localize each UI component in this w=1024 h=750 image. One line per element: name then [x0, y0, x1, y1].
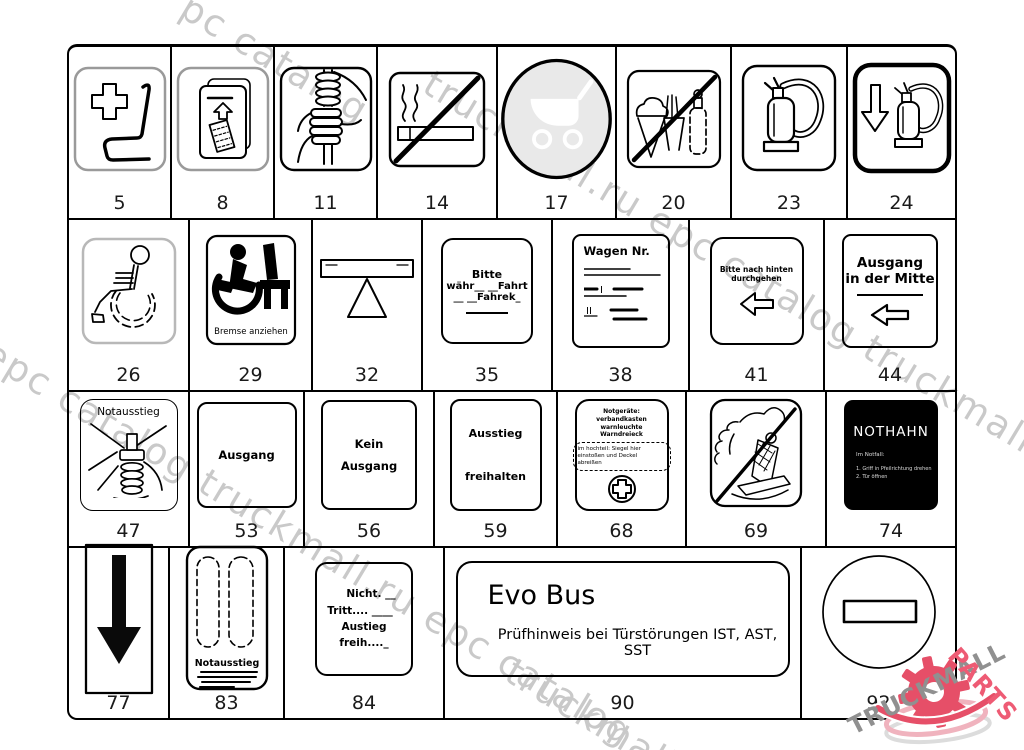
sign-line: Bitte nach hinten [720, 265, 793, 274]
item-number: 44 [825, 364, 955, 386]
sign-line: währ__ __Fahrt [446, 281, 527, 292]
wagen-nr-sign: Wagen Nr. I II [572, 234, 670, 348]
sign-line: freih...._ [339, 635, 388, 651]
catalog-cell-5[interactable]: 5 [69, 47, 172, 218]
sign-line: 1. Griff in Pfeilrichtung drehen [856, 466, 938, 472]
table-row: Notausstieg 47 Ausgang [69, 392, 955, 548]
item-number: 29 [190, 364, 311, 386]
item-number: 35 [423, 364, 551, 386]
move-to-back-sign: Bitte nach hinten durchgehen [710, 237, 804, 345]
sign-line: freihalten [465, 470, 526, 483]
sign-line: Im Notfall: [856, 452, 938, 458]
item-number: 24 [848, 192, 955, 214]
wheelchair-brake-icon: Bremse anziehen [203, 233, 299, 349]
sign-line: einstoßen und Deckel [578, 453, 666, 460]
sign-line: Notgeräte: [603, 408, 640, 416]
first-aid-seat-icon [72, 64, 168, 174]
item-number: 68 [558, 520, 685, 542]
item-number: 20 [617, 192, 730, 214]
catalog-cell-26[interactable]: 26 [69, 220, 190, 390]
divider-line [466, 312, 508, 314]
seesaw-balance-icon [315, 253, 419, 329]
catalog-cell-20[interactable]: 20 [617, 47, 732, 218]
left-arrow-icon [737, 290, 777, 318]
sign-line: Ausgang [857, 255, 923, 271]
step-warning-sign: Nicht. __ Tritt.... ____ Austieg freih..… [315, 562, 413, 676]
item-number: 32 [313, 364, 421, 386]
evobus-note-sign: Evo Bus Prüfhinweis bei Türstörungen IST… [456, 561, 790, 677]
catalog-cell-11[interactable]: 11 [275, 47, 378, 218]
sign-line: Tritt.... ____ [327, 603, 392, 619]
sign-line: verbandkasten [596, 416, 647, 424]
no-crush-hand-icon [704, 396, 808, 514]
sign-title: Wagen Nr. [584, 244, 650, 258]
nothahn-sign: NOTHAHN Im Notfall: 1. Griff in Pfeilric… [844, 400, 938, 510]
sign-line: Nicht. __ [346, 586, 395, 602]
catalog-cell-74[interactable]: NOTHAHN Im Notfall: 1. Griff in Pfeilric… [827, 392, 955, 546]
catalog-cell-53[interactable]: Ausgang 53 [190, 392, 305, 546]
item-number: 5 [69, 192, 170, 214]
catalog-cell-8[interactable]: 8 [172, 47, 275, 218]
svg-text:I: I [600, 285, 603, 296]
catalog-cell-77[interactable]: 77 [69, 548, 170, 718]
sign-line: Bitte [472, 268, 502, 281]
catalog-cell-44[interactable]: Ausgang in der Mitte 44 [825, 220, 955, 390]
item-number: 23 [732, 192, 846, 214]
item-number: 69 [687, 520, 825, 542]
keep-exit-clear-sign: Ausstieg freihalten [450, 399, 542, 511]
sign-label: Ausgang [218, 448, 274, 462]
catalog-cell-90[interactable]: Evo Bus Prüfhinweis bei Türstörungen IST… [445, 548, 802, 718]
sign-label: Notausstieg [194, 658, 259, 669]
catalog-cell-35[interactable]: Bitte währ__ __Fahrt __ __Fahrek_ 35 [423, 220, 553, 390]
epc-catalog-plate: pc catalog truckmall.ru epc catalog truc… [0, 0, 1024, 750]
item-number: 56 [305, 520, 433, 542]
catalog-cell-69[interactable]: 69 [687, 392, 827, 546]
item-number: 14 [378, 192, 496, 214]
sign-line: __ __Fahrek_ [454, 292, 521, 303]
hand-pull-handle-icon [86, 418, 172, 498]
fire-extinguisher-icon [737, 60, 841, 178]
table-row: 26 Bremse anziehen 29 [69, 220, 955, 392]
catalog-cell-23[interactable]: 23 [732, 47, 848, 218]
sign-line: warnleuchte [601, 424, 643, 432]
item-number: 83 [170, 692, 283, 714]
emergency-exit-handle-sign: Notausstieg [80, 399, 178, 511]
handhold-pole-icon [278, 64, 374, 174]
emergency-exit-door-icon: Notausstieg [176, 544, 278, 694]
dashed-note-box: im hochteil: Siegel hier einstoßen und D… [573, 442, 671, 471]
catalog-cell-47[interactable]: Notausstieg 47 [69, 392, 190, 546]
item-number: 84 [285, 692, 443, 714]
pram-circle-icon [498, 54, 615, 184]
sign-line: im hochteil: Siegel hier [578, 446, 666, 453]
sign-line: Ausstieg [469, 427, 523, 440]
no-eating-icon [624, 64, 724, 174]
first-aid-kit-sign: Notgeräte: verbandkasten warnleuchte War… [575, 399, 669, 511]
sign-title: Notausstieg [97, 406, 160, 418]
item-number: 38 [553, 364, 688, 386]
divider-line [857, 294, 923, 296]
form-lines: I II [584, 262, 662, 328]
catalog-cell-84[interactable]: Nicht. __ Tritt.... ____ Austieg freih..… [285, 548, 445, 718]
wheelchair-icon [79, 234, 179, 348]
catalog-cell-41[interactable]: Bitte nach hinten durchgehen 41 [690, 220, 825, 390]
no-exit-sign: Kein Ausgang [321, 400, 417, 510]
item-number: 17 [498, 192, 615, 214]
item-number: 41 [690, 364, 823, 386]
sign-subtitle: Prüfhinweis bei Türstörungen IST, AST, S… [488, 627, 788, 659]
sign-line: Austieg [341, 619, 386, 635]
sign-title: NOTHAHN [844, 424, 938, 440]
down-arrow-icon [83, 543, 155, 695]
catalog-cell-17[interactable]: 17 [498, 47, 617, 218]
catalog-cell-83[interactable]: Notausstieg 83 [170, 548, 285, 718]
sign-line: Kein [355, 437, 384, 451]
sign-line: abreißen [578, 460, 666, 467]
item-number: 8 [172, 192, 273, 214]
svg-text:II: II [586, 306, 592, 317]
item-number: 77 [69, 692, 168, 714]
table-row: 77 Notausstieg 83 Nicht. __ [69, 548, 955, 718]
catalog-cell-14[interactable]: 14 [378, 47, 498, 218]
table-row: 5 8 [69, 47, 955, 220]
sign-label: Bremse anziehen [214, 327, 288, 337]
exit-middle-sign: Ausgang in der Mitte [842, 234, 938, 348]
exit-sign: Ausgang [197, 402, 297, 508]
catalog-cell-38[interactable]: Wagen Nr. I II 38 [553, 220, 690, 390]
item-number: 90 [445, 692, 800, 714]
driver-notice-sign: Bitte währ__ __Fahrt __ __Fahrek_ [441, 238, 533, 344]
item-number: 26 [69, 364, 188, 386]
catalog-cell-24[interactable]: 24 [848, 47, 955, 218]
sign-line: Warndreieck [600, 431, 643, 439]
fire-extinguisher-down-arrow-icon [851, 61, 953, 177]
item-number: 74 [827, 520, 955, 542]
item-number: 47 [69, 520, 188, 542]
catalog-cell-68[interactable]: Notgeräte: verbandkasten warnleuchte War… [558, 392, 687, 546]
sign-title: Evo Bus [488, 580, 596, 611]
sign-line: Ausgang [341, 459, 397, 473]
catalog-cell-56[interactable]: Kein Ausgang 56 [305, 392, 435, 546]
left-arrow-icon [868, 302, 912, 328]
sign-line: durchgehen [731, 274, 781, 283]
ticket-validator-icon [175, 64, 271, 174]
sign-line: 2. Tür öffnen [856, 474, 938, 480]
catalog-cell-32[interactable]: 32 [313, 220, 423, 390]
catalog-cell-59[interactable]: Ausstieg freihalten 59 [435, 392, 558, 546]
first-aid-cross-icon [605, 474, 639, 506]
item-number: 59 [435, 520, 556, 542]
catalog-cell-29[interactable]: Bremse anziehen 29 [190, 220, 313, 390]
item-number: 11 [275, 192, 376, 214]
sign-line: in der Mitte [845, 271, 934, 287]
catalog-table: 5 8 [67, 44, 957, 720]
item-number: 53 [190, 520, 303, 542]
no-smoking-icon [385, 64, 489, 174]
